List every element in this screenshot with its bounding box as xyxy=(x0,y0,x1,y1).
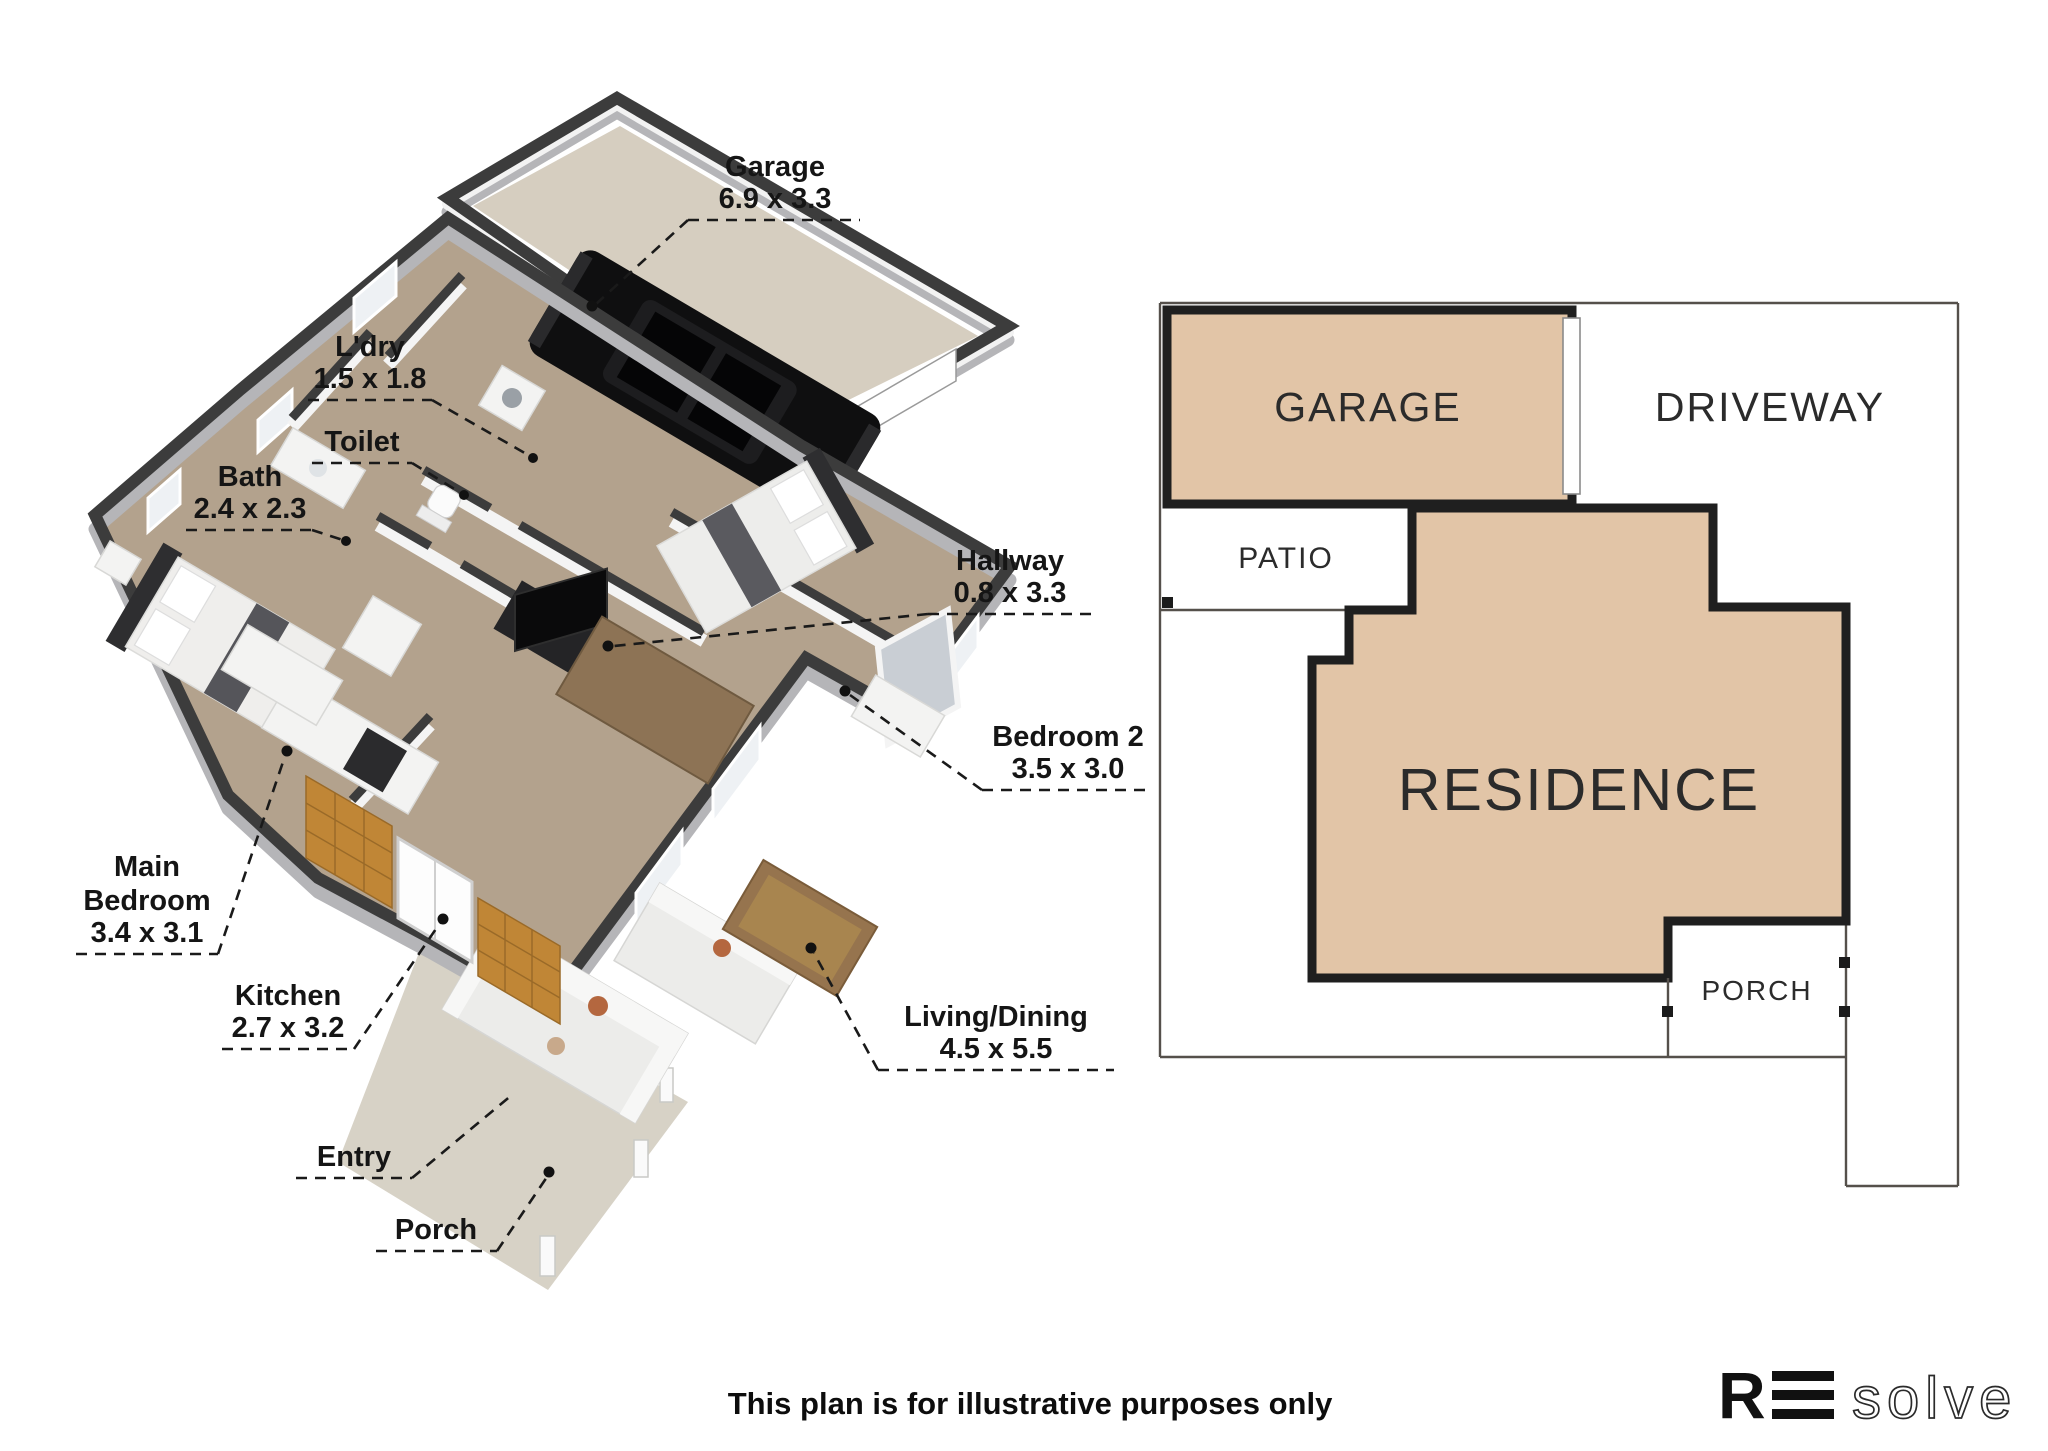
label-bath: Bath xyxy=(218,461,282,493)
label-kitchen-dims: 2.7 x 3.2 xyxy=(232,1012,345,1044)
label-garage: Garage xyxy=(725,151,825,183)
label-main-bedroom-2: Bedroom xyxy=(83,885,210,917)
logo-e-bars xyxy=(1772,1371,1834,1419)
site-residence-label: RESIDENCE xyxy=(1398,757,1760,823)
disclaimer-text: This plan is for illustrative purposes o… xyxy=(728,1386,1333,1421)
label-bedroom2: Bedroom 2 xyxy=(992,721,1143,753)
label-main-bedroom-1: Main xyxy=(114,851,180,883)
label-kitchen: Kitchen xyxy=(235,980,341,1012)
label-hallway: Hallway xyxy=(956,545,1064,577)
label-main-bedroom-dims: 3.4 x 3.1 xyxy=(91,917,204,949)
label-living-dining: Living/Dining xyxy=(904,1001,1088,1033)
floor-plan-page: Garage 6.9 x 3.3 L'dry 1.5 x 1.8 Toilet … xyxy=(0,0,2048,1451)
label-garage-dims: 6.9 x 3.3 xyxy=(719,183,832,215)
site-driveway-label: DRIVEWAY xyxy=(1655,384,1885,430)
site-patio-label: PATIO xyxy=(1238,542,1334,575)
label-laundry-dims: 1.5 x 1.8 xyxy=(314,363,427,395)
logo-r: R xyxy=(1718,1358,1766,1432)
logo-solve: solve xyxy=(1852,1366,2017,1431)
site-garage-label: GARAGE xyxy=(1274,384,1461,430)
site-garage-door xyxy=(1563,318,1580,494)
label-entry: Entry xyxy=(317,1141,391,1173)
label-hallway-dims: 0.8 x 3.3 xyxy=(954,577,1067,609)
label-bedroom2-dims: 3.5 x 3.0 xyxy=(1012,753,1125,785)
label-porch: Porch xyxy=(395,1214,477,1246)
logo: R solve xyxy=(1718,1358,2017,1432)
site-porch-label: PORCH xyxy=(1701,975,1812,1006)
label-living-dining-dims: 4.5 x 5.5 xyxy=(940,1033,1053,1065)
label-laundry: L'dry xyxy=(335,331,405,363)
label-bath-dims: 2.4 x 2.3 xyxy=(194,493,307,525)
label-toilet: Toilet xyxy=(324,426,400,458)
